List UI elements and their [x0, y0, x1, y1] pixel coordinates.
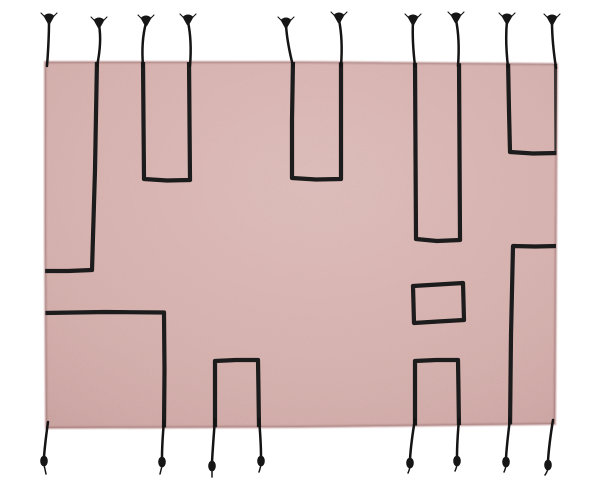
- tassel-top-4: [180, 14, 196, 66]
- tassel-bottom-1: [40, 422, 48, 474]
- tassel-top-9: [499, 13, 515, 67]
- tassel-thread: [548, 420, 553, 461]
- tassel-top-8: [448, 12, 464, 66]
- tassel-thread: [413, 22, 415, 66]
- tassel-bottom-6: [453, 419, 461, 471]
- tassel-thread: [142, 23, 146, 66]
- tassel-thread: [339, 20, 342, 66]
- tassel-tail-wisp: [455, 465, 457, 471]
- pattern-line-right-edge-leg: [556, 63, 557, 152]
- rug-photo-illustration: [0, 0, 600, 500]
- tassel-top-3: [138, 15, 154, 66]
- rug-lighting: [45, 62, 557, 428]
- tassel-fan-tuft: [44, 14, 55, 25]
- tassel-top-1: [41, 13, 57, 66]
- tassel-top-10: [544, 14, 560, 68]
- tassel-fan-tuft: [94, 18, 105, 29]
- tassel-fan-tuft: [451, 13, 462, 24]
- tassel-fan-tuft: [547, 15, 558, 26]
- tassel-bottom-8: [544, 420, 553, 475]
- tassel-thread: [506, 21, 508, 67]
- tassel-bottom-2: [158, 421, 166, 474]
- tassel-fan-tuft: [334, 13, 345, 24]
- tassel-tail-wisp: [504, 466, 506, 472]
- tassel-tail-wisp: [160, 466, 162, 474]
- tassel-thread: [162, 421, 164, 458]
- photo-canvas: [0, 0, 600, 500]
- tassel-thread: [552, 22, 556, 68]
- tassel-fan-tuft: [408, 15, 419, 26]
- tassel-thread: [47, 21, 49, 66]
- tassel-tail-wisp: [44, 465, 46, 474]
- tassel-thread: [97, 25, 100, 66]
- tassel-bottom-5: [406, 419, 415, 473]
- tassel-top-5: [278, 17, 294, 66]
- tassel-thread: [259, 419, 261, 457]
- tassel-bottom-7: [502, 419, 510, 472]
- tassel-top-7: [405, 14, 421, 66]
- tassel-fan-tuft: [141, 16, 152, 27]
- tassel-thread: [457, 419, 459, 457]
- tassel-tail-wisp: [259, 465, 261, 472]
- tassel-fan-tuft: [183, 15, 194, 26]
- tassel-tail-wisp: [408, 467, 410, 473]
- tassels-top-row: [41, 12, 560, 68]
- tassel-fan-tuft: [281, 18, 292, 29]
- tassel-thread: [286, 25, 293, 66]
- tassel-thread: [188, 22, 191, 66]
- tassel-top-6: [331, 12, 347, 66]
- tassel-fan-tuft: [502, 14, 513, 25]
- tassel-thread: [456, 20, 459, 66]
- tassel-top-2: [91, 17, 107, 66]
